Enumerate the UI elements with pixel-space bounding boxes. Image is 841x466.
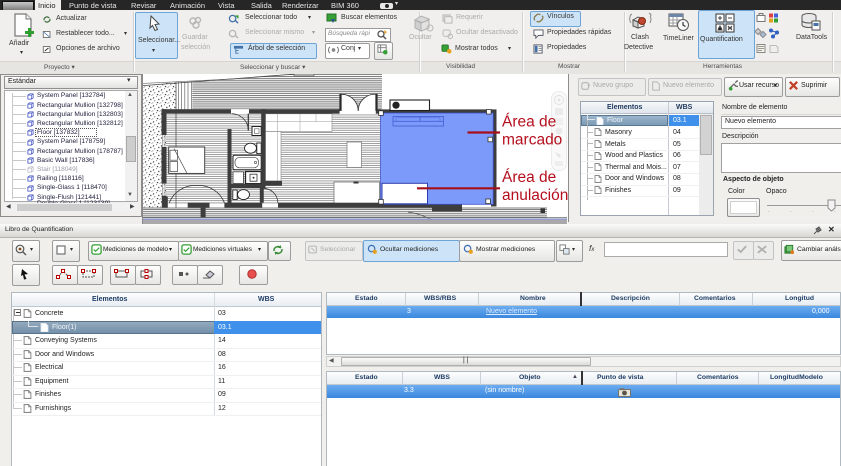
svg-text:anulación: anulación xyxy=(502,187,568,204)
svg-text:marcado: marcado xyxy=(502,132,562,149)
svg-text:Área de: Área de xyxy=(502,169,556,186)
svg-text:Área de: Área de xyxy=(502,114,556,131)
